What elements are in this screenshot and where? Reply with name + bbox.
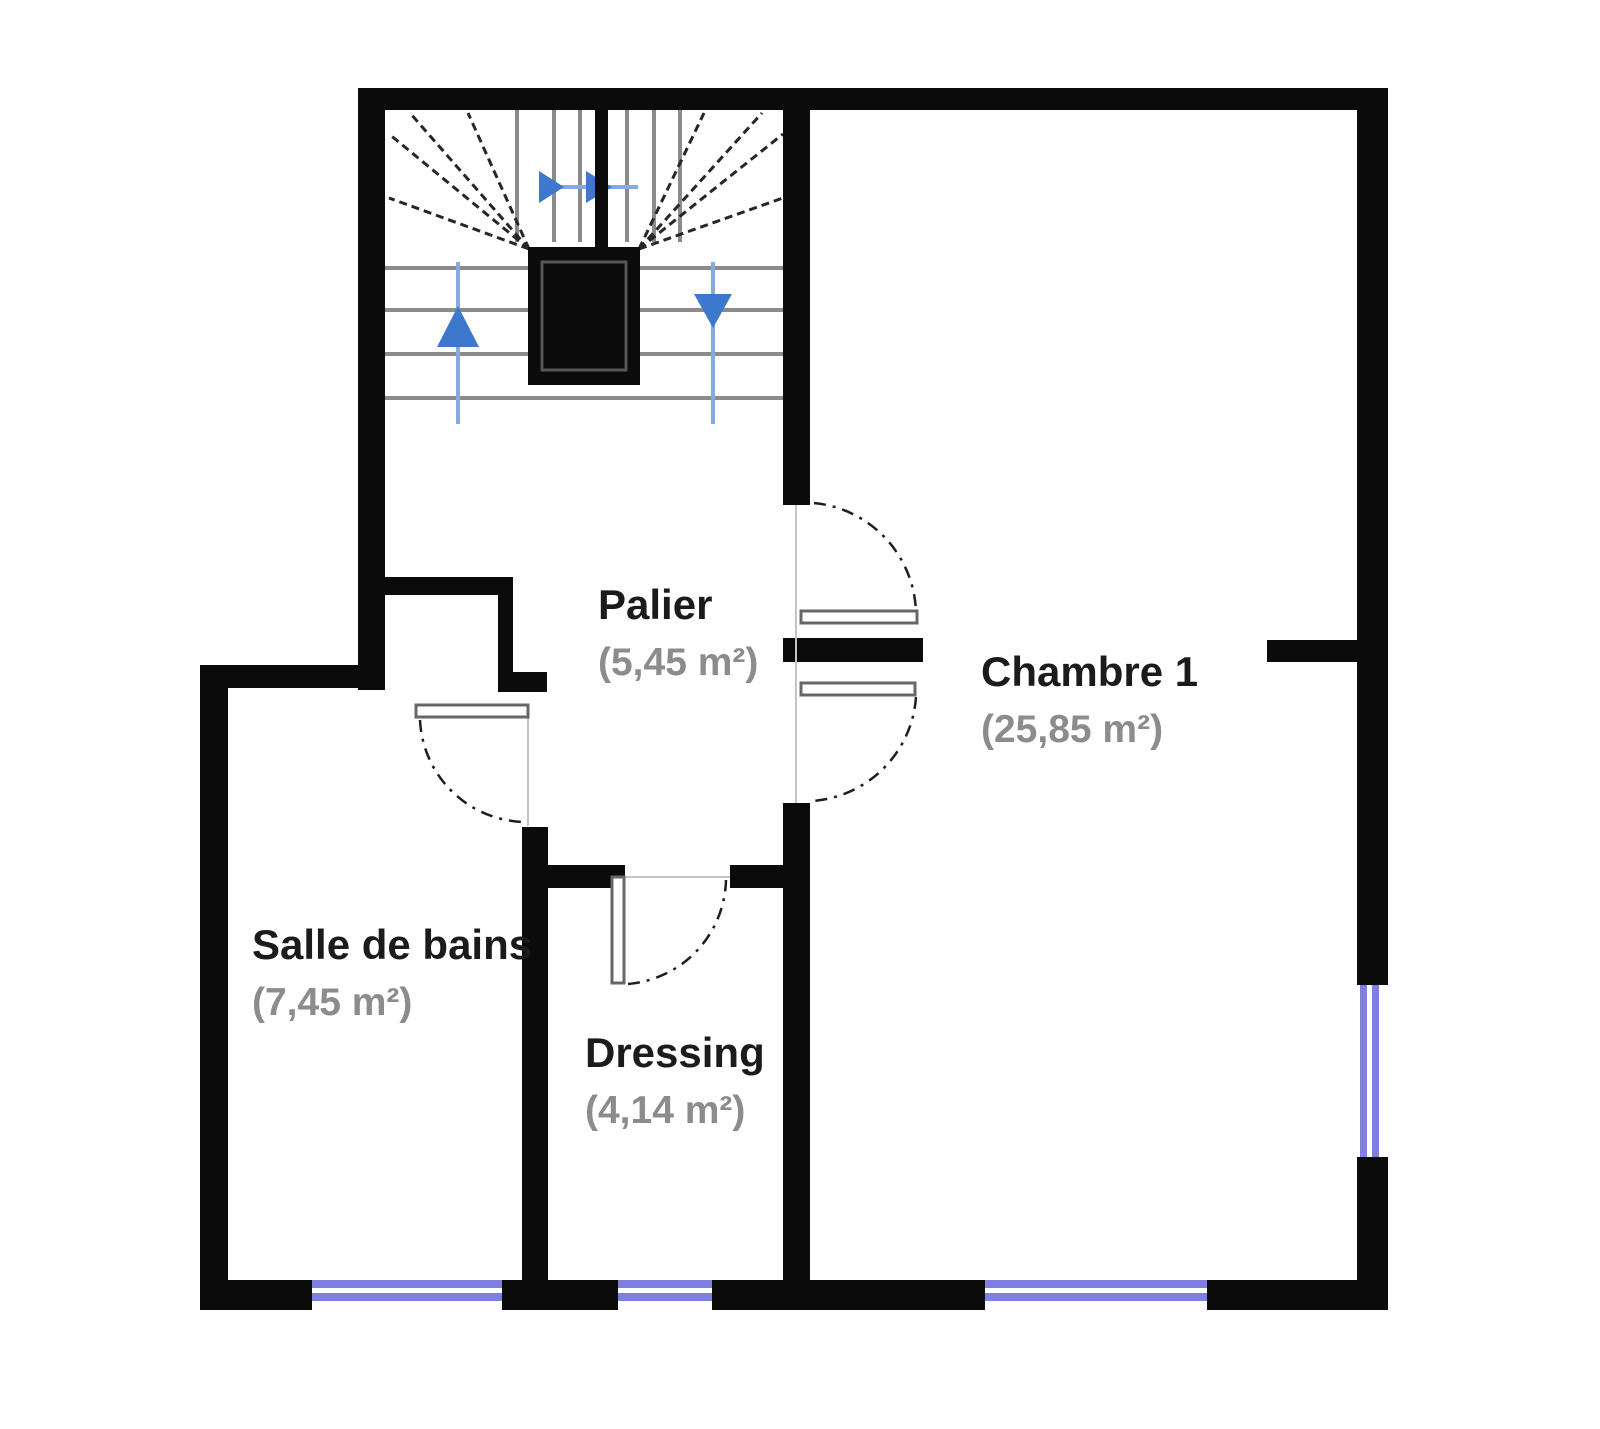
wall-recess-right [498,595,513,675]
wall-bottom-seg4 [1207,1280,1388,1310]
stair-winder-fan-left [389,113,529,249]
stair-tread-bottom [385,396,787,400]
window-bathroom-bottom [312,1280,502,1310]
floorplan: Palier (5,45 m²) Chambre 1 (25,85 m²) Sa… [0,0,1600,1429]
wall-stair-center [595,110,608,247]
wall-bathroom-dressing [522,827,548,1310]
room-label-dressing: Dressing (4,14 m²) [585,1031,765,1132]
room-name-salle-de-bains: Salle de bains [252,923,532,967]
room-area-salle-de-bains: (7,45 m²) [252,983,532,1024]
wall-dressing-top-right [730,865,783,888]
wall-bedroom-lower [783,803,810,1310]
door-dressing [612,877,730,984]
window-dressing-bottom [618,1280,712,1310]
wall-bathroom-top [200,665,385,688]
room-label-salle-de-bains: Salle de bains (7,45 m²) [252,923,532,1024]
wall-under-stair [358,577,513,595]
window-bedroom-bottom [985,1280,1207,1310]
windows [312,985,1388,1310]
wall-right-upper [1357,88,1388,985]
wall-bottom-seg3 [712,1280,985,1310]
wall-stair-left [358,88,385,690]
wall-recess-step [498,672,547,692]
doors [416,503,917,984]
room-label-palier: Palier (5,45 m²) [598,583,758,684]
room-area-chambre1: (25,85 m²) [981,710,1198,751]
room-area-dressing: (4,14 m²) [585,1091,765,1132]
wall-door-center-stub [783,638,923,662]
wall-left [200,665,228,1310]
wall-bottom-seg2 [502,1280,618,1310]
stair-core [528,247,640,385]
floorplan-drawing [0,0,1600,1429]
wall-top [358,88,1388,110]
room-area-palier: (5,45 m²) [598,643,758,684]
room-label-chambre1: Chambre 1 (25,85 m²) [981,650,1198,751]
window-bedroom-right [1357,985,1388,1157]
room-name-dressing: Dressing [585,1031,765,1075]
wall-bedroom-upper [783,110,810,505]
wall-right-stub [1267,640,1357,662]
room-name-palier: Palier [598,583,758,627]
walls [200,88,1388,1310]
stair-winder-fan-right [639,113,783,249]
door-bathroom [416,705,528,826]
room-name-chambre1: Chambre 1 [981,650,1198,694]
